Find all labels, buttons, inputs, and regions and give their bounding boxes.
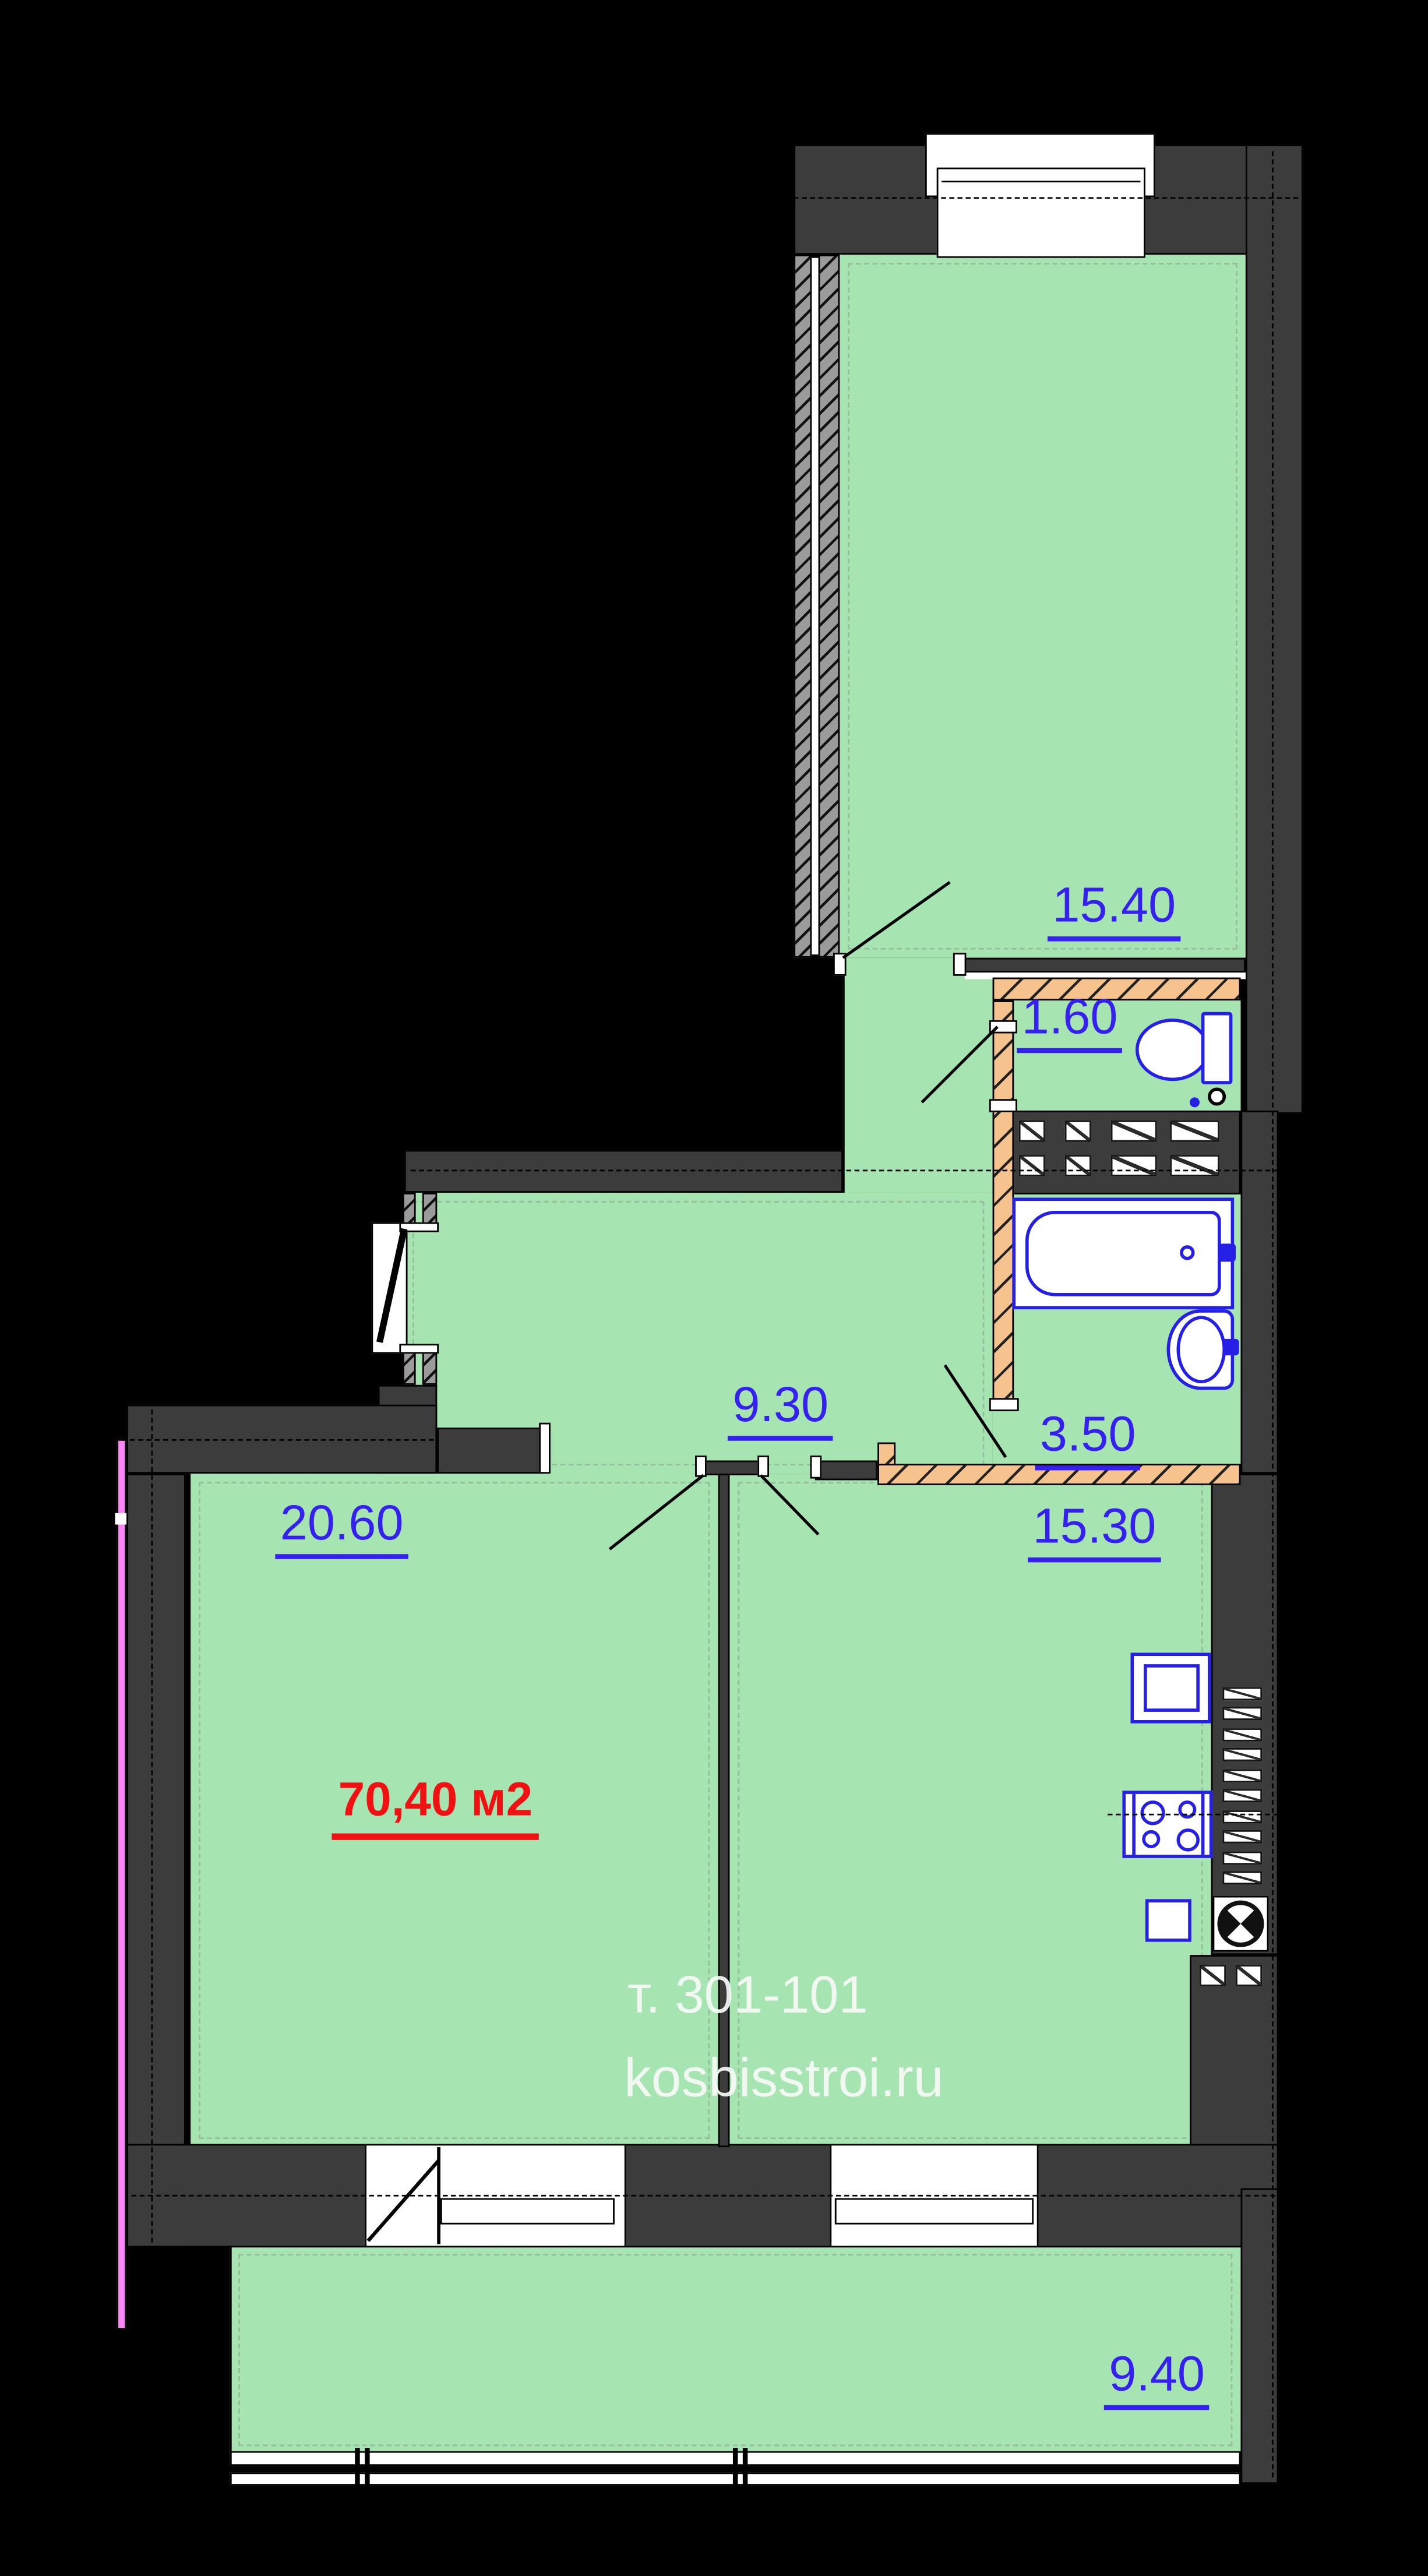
axis-line — [411, 1169, 1295, 1171]
floor-plan: 15.40 1.60 9.30 3.50 20.60 15.30 9.40 70… — [0, 0, 1428, 2576]
finish-line-hall — [412, 1201, 985, 1465]
balcony-mullion-1a — [355, 2448, 359, 2489]
vent-duct — [1019, 1155, 1045, 1176]
watermark-phone: т. 301-101 — [627, 1965, 868, 2025]
jamb-entry-top — [399, 1222, 439, 1232]
wall-hall-south-2 — [815, 1461, 877, 1481]
window-kitchen-band — [835, 2198, 1034, 2224]
label-total-area: 70,40 м2 — [332, 1774, 539, 1840]
vent-duct — [1111, 1155, 1157, 1176]
insulation-strip-pink — [117, 1439, 126, 2330]
hatch-bedroom-west-inner — [819, 255, 840, 958]
stove-edge-left — [1132, 1794, 1136, 1855]
wall-bedroom-south — [965, 958, 1246, 972]
vent-duct — [1065, 1155, 1091, 1176]
axis-line — [122, 1439, 434, 1441]
wall-right-upper — [1246, 145, 1303, 1114]
vent-duct — [1170, 1155, 1219, 1176]
vent-duct — [1222, 1770, 1262, 1783]
bathtub-drain-icon — [1180, 1245, 1194, 1260]
jamb-kitchen-door — [757, 1456, 769, 1477]
partition-bath-corner — [877, 1443, 895, 1465]
watermark-website: kosbisstroi.ru — [624, 2047, 943, 2109]
water-point-icon — [1190, 1097, 1200, 1107]
washer-icon — [1145, 1899, 1191, 1941]
wash-basin-inner-icon — [1176, 1316, 1226, 1383]
stove-burner-icon — [1140, 1800, 1165, 1825]
toilet-tank-icon — [1201, 1012, 1233, 1084]
jamb-wc-door-top — [989, 1020, 1017, 1034]
window-living-band — [440, 2198, 615, 2224]
vent-duct — [1222, 1852, 1262, 1865]
label-area-balcony: 9.40 — [1104, 2349, 1210, 2409]
finish-line-balcony — [238, 2254, 1232, 2446]
vent-shaft-box — [1213, 1896, 1269, 1952]
label-area-bedroom: 15.40 — [1048, 880, 1181, 940]
jamb-bath-door — [989, 1398, 1019, 1411]
stove-icon — [1122, 1791, 1212, 1858]
vent-duct — [1222, 1789, 1262, 1802]
finish-line-bedroom — [848, 263, 1237, 950]
stove-burner-icon — [1142, 1830, 1160, 1848]
hatch-gap-bedroom — [812, 258, 818, 954]
axis-line — [1108, 1814, 1295, 1816]
vent-duct — [1170, 1120, 1219, 1142]
floor-drain-icon — [1208, 1088, 1226, 1106]
vent-shaft-icon — [1214, 1898, 1267, 1950]
wash-basin-tap-icon — [1222, 1339, 1239, 1355]
jamb-hall-south-2 — [810, 1456, 822, 1478]
stove-burner-icon — [1178, 1800, 1196, 1819]
jamb-bedroom-door-left — [833, 953, 847, 975]
toilet-bowl-icon — [1136, 1019, 1210, 1081]
entry-landing — [371, 1222, 407, 1354]
hatch-bedroom-west-outer — [794, 255, 812, 958]
vent-duct — [1222, 1707, 1262, 1720]
vent-duct — [1019, 1120, 1045, 1142]
jamb-bedroom-door-right — [953, 953, 967, 975]
balcony-mullion-1b — [365, 2448, 369, 2489]
kitchen-sink-inner-icon — [1144, 1664, 1200, 1712]
balcony-mullion-2b — [743, 2448, 748, 2489]
jamb-wc-door-bottom — [989, 1099, 1017, 1112]
axis-line — [794, 197, 1298, 199]
label-area-kitchen: 15.30 — [1028, 1502, 1161, 1562]
bathtub-tap-icon — [1219, 1243, 1236, 1261]
vent-duct — [1222, 1748, 1262, 1761]
vent-duct — [1236, 1965, 1262, 1986]
balcony-mullion-2a — [733, 2448, 738, 2489]
stove-edge-right — [1201, 1794, 1205, 1855]
wall-hall-south-T — [701, 1461, 762, 1475]
jamb-living-door — [695, 1456, 707, 1477]
label-area-wc: 1.60 — [1017, 992, 1123, 1052]
jamb-hall-south-1 — [539, 1423, 551, 1474]
vent-duct — [1222, 1687, 1262, 1701]
label-area-living: 20.60 — [275, 1498, 408, 1558]
axis-line — [1272, 151, 1274, 2477]
vent-duct — [1222, 1728, 1262, 1742]
vent-duct — [1222, 1871, 1262, 1884]
axis-line — [151, 1409, 153, 2242]
wall-partition-living-kitchen — [718, 1474, 730, 2147]
window-bedroom-glass-line — [942, 181, 1140, 182]
vent-duct — [1222, 1810, 1262, 1824]
wall-left-exterior — [126, 1474, 186, 2247]
axis-line — [132, 2195, 1275, 2197]
vent-duct — [1222, 1830, 1262, 1844]
label-area-bathroom: 3.50 — [1035, 1409, 1141, 1470]
corridor-floor — [843, 958, 993, 1193]
jamb-entry-bottom — [399, 1344, 439, 1354]
vent-duct — [1111, 1120, 1157, 1142]
stove-burner-icon — [1176, 1828, 1199, 1851]
wall-hall-south-1 — [437, 1428, 544, 1474]
vent-duct — [1065, 1120, 1091, 1142]
vent-duct — [1200, 1965, 1226, 1986]
partition-wc-bath-west — [993, 1000, 1014, 1400]
label-area-hall: 9.30 — [728, 1380, 834, 1440]
